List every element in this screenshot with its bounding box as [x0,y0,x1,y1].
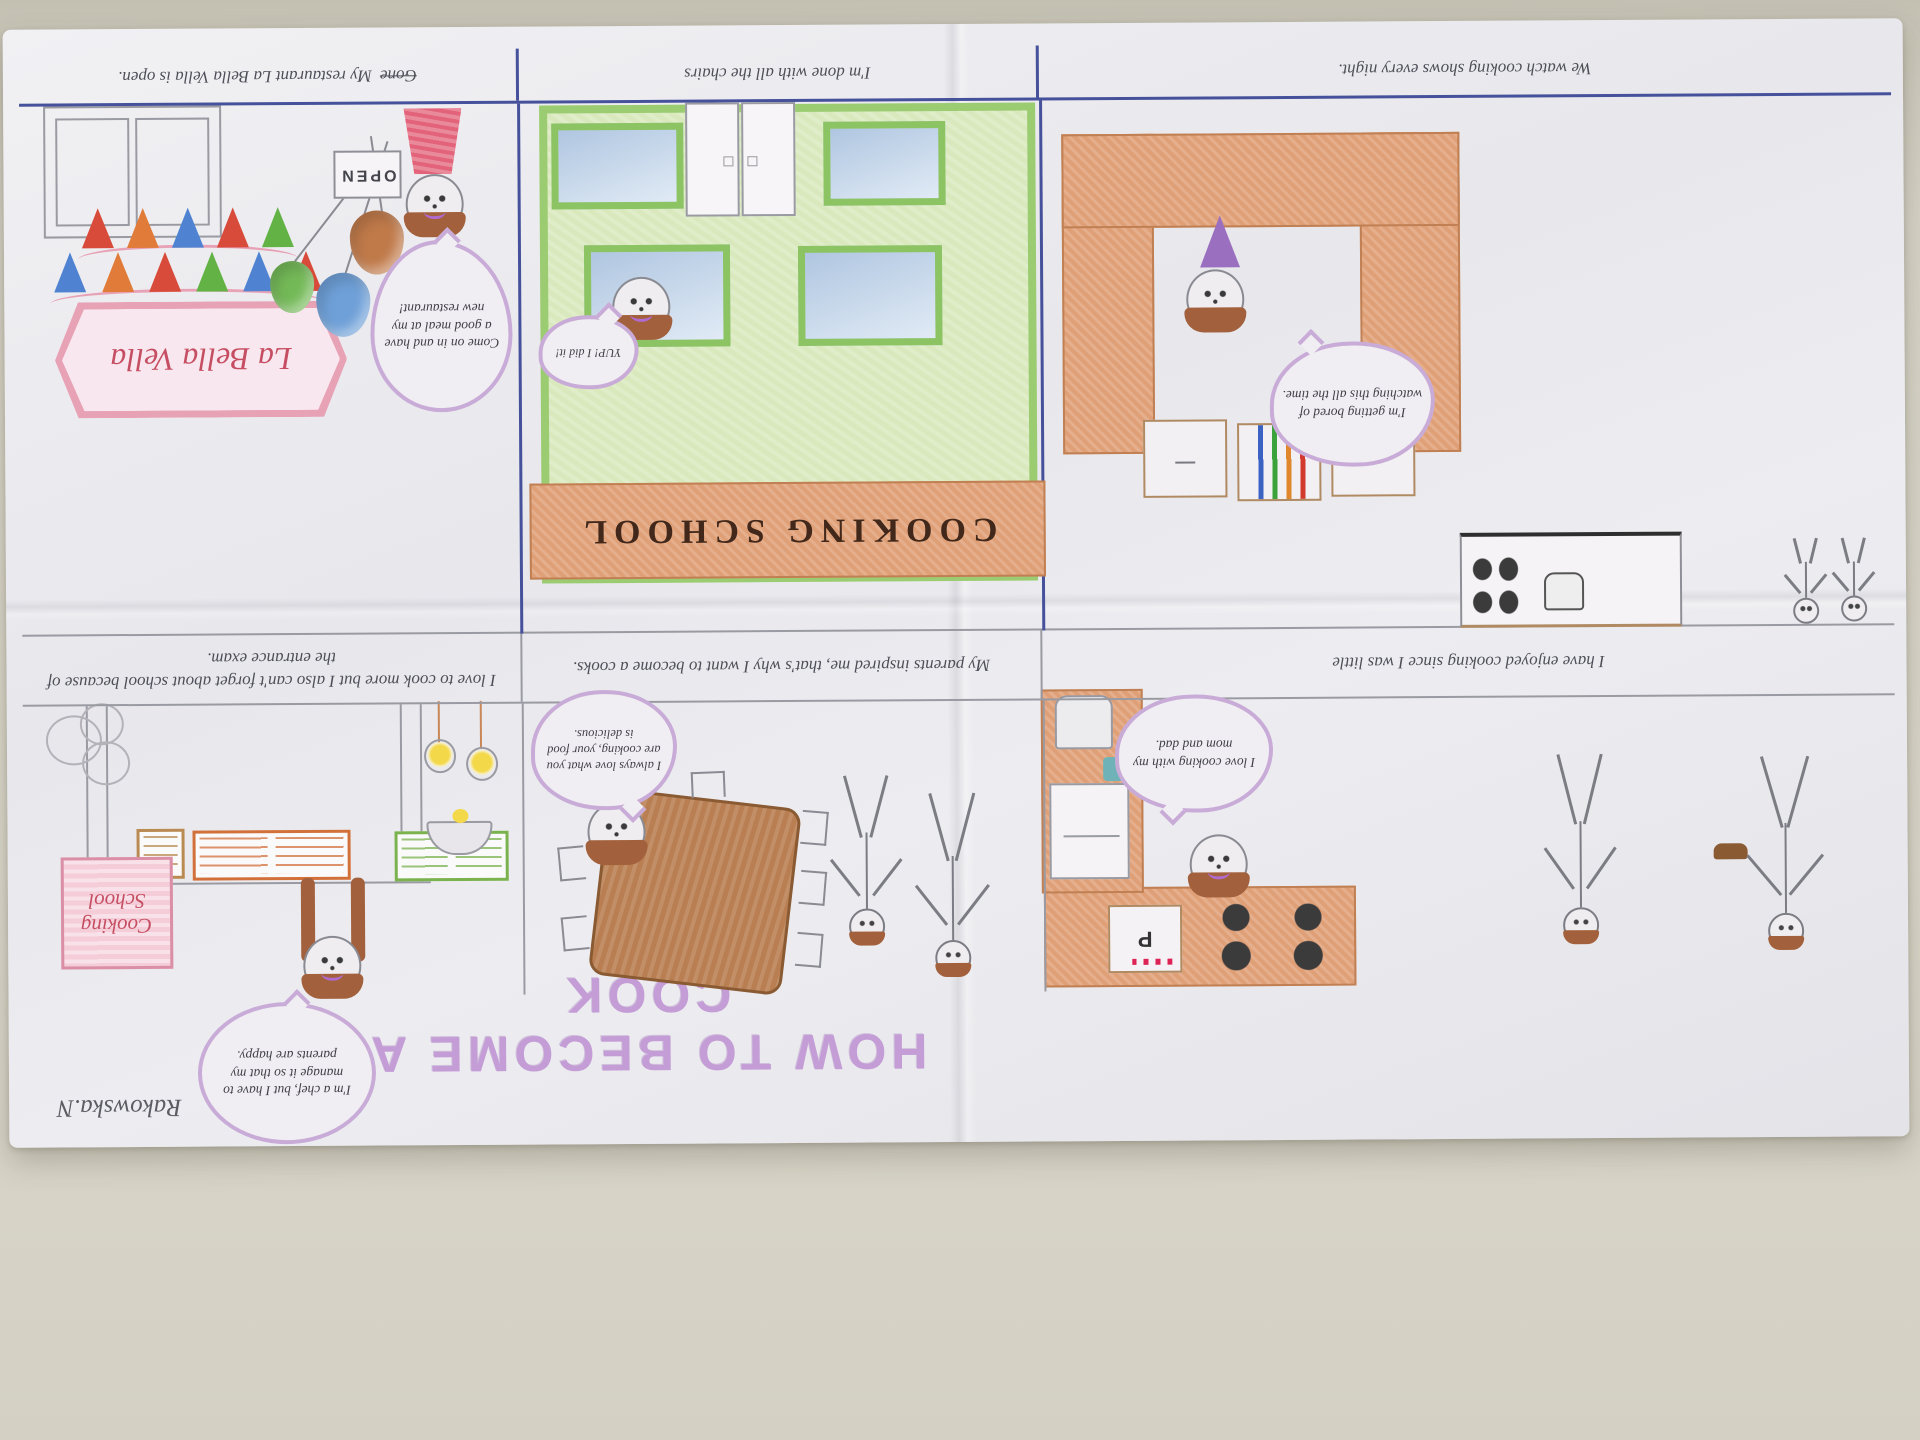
panel-home-kitchen: P [1045,695,1897,991]
figure-head [1841,595,1867,621]
figure-arm-right [1785,574,1802,594]
figure-arm-left [1810,574,1827,594]
oven-letter: P [1138,926,1153,952]
speech-bubble-home-kitchen: I love cooking with my mom and dad. [1115,694,1274,813]
bunting-triangle [149,252,181,292]
panel-dining-room: I always love what you are cooking, your… [524,700,1047,994]
bunting-triangle [217,207,249,247]
child-brow [630,307,652,322]
figure-arm-right [916,885,949,926]
dad-leg-right [1761,756,1784,828]
dad-arm-right [1747,854,1783,895]
stove-unit-burners [1468,553,1526,619]
restaurant-name: La Bella Vella [110,341,292,379]
caption-cooking-school: I'm done with all the chairs [519,45,1039,100]
figure-leg-right [929,793,950,861]
caption-band-1: I have enjoyed cooking since I was littl… [22,623,1894,706]
parent-stick-figure-2 [837,764,896,944]
bunting-row-2 [82,207,294,248]
dad-head [1768,913,1804,949]
open-sign-text: OPEN [339,165,396,183]
caption-band-2: We watch cooking shows every night. I'm … [19,40,1891,106]
parent-stick-figure-1 [923,781,982,976]
bunting-triangle [172,208,204,248]
caption-text: My restaurant La Bella Vella is open. [118,67,372,88]
oven-box: P [1108,905,1182,973]
dad-body [1784,823,1787,913]
struck-word: Gone [380,67,417,86]
bubble-text: I love cooking with my mom and dad. [1127,736,1261,772]
dad-hair [1768,936,1804,950]
cloud-blob [80,703,124,745]
caption-study-room: I love to cook more but I also can't for… [22,634,522,705]
door-handle [723,156,733,166]
poster-paper: HOW TO BECOME A COOK Rakowska.N P [3,18,1910,1148]
lamp-bulb [424,739,456,773]
figure-leg-left [1857,538,1866,564]
mom-arm-right [1545,847,1576,889]
cabinet-drawer [1143,419,1227,498]
mini-stick-figure-2 [1786,538,1827,624]
panel-study-room: Cooking School I'm a chef, but I have to… [23,704,526,998]
mom-head [1563,907,1599,943]
mom-arm-left [1586,847,1616,890]
window [823,121,946,206]
la-bella-vella-banner: La Bella Vella [55,301,348,419]
caption-restaurant: GoneMy restaurant La Bella Vella is open… [19,49,519,104]
caption-big-kitchen: We watch cooking shows every night. [1039,40,1891,97]
child-head [303,936,361,996]
mini-stick-figure-1 [1834,539,1875,621]
chair [557,845,586,881]
chair [798,870,827,906]
figure-body [951,856,954,940]
cook-hair [1184,307,1246,332]
banner-inner: La Bella Vella [62,308,341,412]
mom-body [1579,821,1582,907]
bubble-text: I always love what you are cooking, your… [543,725,665,774]
chef-head [406,174,464,234]
figure-arm-right [831,859,862,897]
piping-bag [1200,215,1240,267]
lamp-bulb [466,747,498,781]
figure-leg-right [844,775,863,837]
panel-row-1: P [23,695,1897,997]
cook-head [1186,269,1244,329]
mom-leg-right [1557,754,1577,824]
figure-hair [935,963,971,977]
figure-leg-right [1794,538,1803,564]
sign-text: Cooking School [82,888,152,939]
door-handle [747,156,757,166]
window [551,123,684,210]
bunting-triangle [196,251,228,291]
bunting-triangle [262,207,294,247]
figure-head [849,908,885,944]
panel-cooking-school: COOKING SCHOOL YUP! I did it! [520,100,1045,633]
child-brow [321,966,343,981]
figure-body [1805,562,1808,598]
door-left [741,102,796,216]
speech-bubble-dining: I always love what you are cooking, your… [530,690,677,811]
chair [800,810,829,846]
figure-leg-right [1842,538,1851,564]
book-page [199,837,267,873]
chef-body [403,108,461,174]
bunting-triangle [54,252,86,292]
figure-body [865,833,868,909]
mom-leg-left [1583,754,1602,825]
bunting-triangle [127,208,159,248]
figure-arm-left [872,858,902,896]
poster-sheet-upside-down: HOW TO BECOME A COOK Rakowska.N P [3,18,1910,1148]
bubble-text: I'm getting bored of watching this all t… [1282,386,1423,422]
mom-stick-figure [1550,743,1611,943]
speech-bubble-yup: YUP! I did it! [538,315,638,390]
figure-arm-left [1858,571,1875,591]
dad-arm-left [1789,854,1824,896]
window [798,245,943,346]
caption-home-kitchen: I have enjoyed cooking since I was littl… [1042,625,1894,698]
small-stove-unit [1460,532,1683,628]
chair [795,932,824,968]
bubble-tail [1298,329,1325,356]
fridge-handle [1064,835,1120,837]
figure-leg-left [955,793,975,861]
frying-pan [1714,843,1748,859]
open-book-orange [192,830,350,881]
chair [560,915,589,951]
counter-base [1061,132,1460,228]
open-sign: OPEN [334,150,402,198]
bunting-triangle [82,208,114,248]
figure-head [1793,598,1819,624]
oven-lights [1132,959,1172,965]
panel-restaurant: La Bella Vella OPEN [19,104,524,637]
bubble-text: Come on in and have a good meal at my ne… [383,299,501,352]
balloon-blue [317,273,371,337]
bubble-text: YUP! I did it! [555,344,621,360]
speech-bubble-restaurant: Come on in and have a good meal at my ne… [370,240,513,413]
cooking-school-sign-small: Cooking School [61,857,174,970]
figure-leg-left [870,775,889,838]
door-right [685,102,740,216]
signboard-text: COOKING SCHOOL [577,510,997,551]
figure-head [935,940,971,976]
lamp-cord [438,701,440,743]
figure-leg-left [1809,538,1818,564]
bubble-tail [1159,799,1186,826]
cooking-school-signboard: COOKING SCHOOL [529,480,1046,579]
drawer-handle [1175,462,1195,464]
child-hair [585,840,647,865]
figure-arm-right [1833,572,1850,592]
dad-stick-figure [1755,744,1816,949]
child-head [1190,834,1248,894]
dome-bulb [452,809,468,823]
author-signature: Rakowska.N [57,1093,181,1122]
bunting-triangle [102,252,134,292]
bucket [1055,695,1113,749]
figure-body [1853,562,1856,596]
speech-bubble-big-kitchen: I'm getting bored of watching this all t… [1270,341,1436,467]
comic-grid: P [19,40,1897,997]
bubble-text: I'm a chef, but I have to manage it so t… [210,1046,364,1100]
dad-leg-left [1787,756,1809,828]
figure-hair [849,931,885,945]
pot [1544,572,1584,610]
lamp-cord [480,701,482,749]
figure-arm-left [957,884,990,925]
panel-big-kitchen: I'm getting bored of watching this all t… [1042,95,1894,630]
mom-hair [1563,930,1599,944]
book-page [275,837,343,873]
panel-row-2: I'm getting bored of watching this all t… [19,95,1894,636]
chair [691,771,726,798]
speech-bubble-study: I'm a chef, but I have to manage it so t… [197,1002,376,1145]
stove-burners [1194,898,1344,979]
fridge [1049,783,1130,879]
child-brow [1208,864,1230,879]
